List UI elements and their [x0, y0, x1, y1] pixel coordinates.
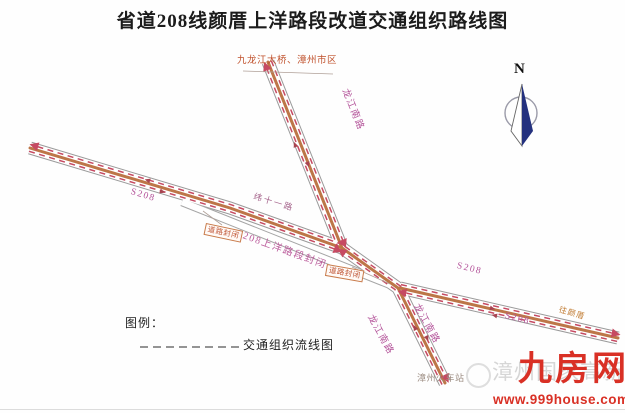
legend-flow-line-label: 交通组织流线图	[243, 339, 334, 351]
page-title: 省道208线颜厝上洋路段改道交通组织路线图	[0, 12, 625, 31]
site-url: www.999house.com	[493, 393, 625, 407]
north-arrow-icon	[505, 84, 537, 146]
traffic-flow-lines	[29, 61, 619, 385]
watermark-logo-icon	[466, 363, 491, 388]
destination-station: 漳州火车站	[417, 374, 465, 383]
destination-top: 九龙江大桥、漳州市区	[237, 57, 337, 67]
compass-north-label: N	[514, 62, 525, 77]
detour-route-highlight	[30, 62, 618, 383]
site-logo: 九房网	[518, 352, 625, 386]
bottom-divider	[0, 409, 625, 410]
legend-heading: 图例：	[125, 317, 164, 329]
traffic-map: 省道208线颜厝上洋路段改道交通组织路线图 N 九龙江大桥、漳州市区 往颜厝 漳…	[0, 0, 625, 413]
